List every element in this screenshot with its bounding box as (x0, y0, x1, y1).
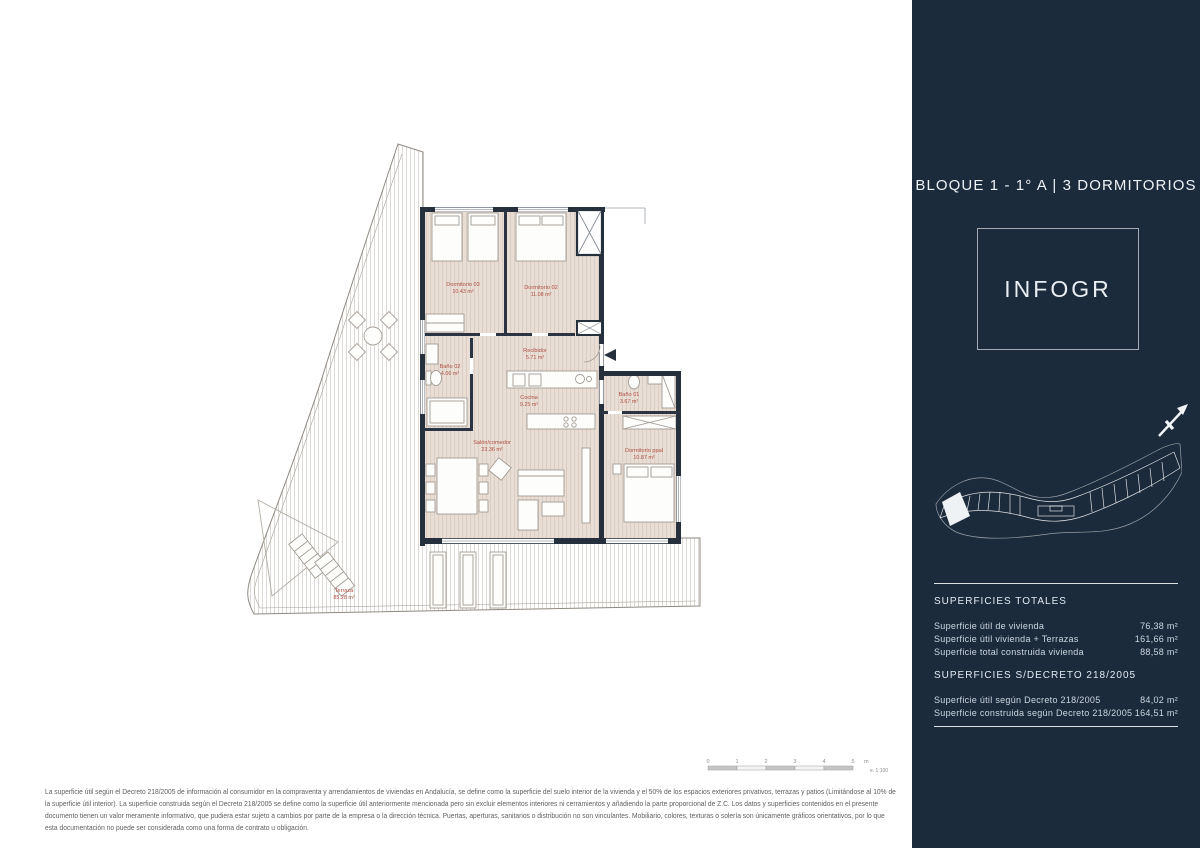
disclaimer-line: documento tienen un valor meramente info… (45, 810, 845, 822)
site-plan (930, 440, 1182, 552)
scale-note: e. 1:100 (870, 768, 888, 774)
surface-row: Superficie útil de vivienda 76,38 m² (934, 621, 1178, 631)
floor-plan: Dormitorio 03 10.43 m² Dormitorio 02 11.… (230, 128, 710, 662)
surface-row: Superficie construida según Decreto 218/… (934, 708, 1178, 718)
scale-tick: 2 (764, 759, 767, 765)
scale-tick: 3 (793, 759, 796, 765)
logo-text: INFOGR (1004, 276, 1111, 303)
divider (934, 726, 1178, 727)
room-label-dormitorio-03: Dormitorio 03 (446, 282, 480, 288)
surface-row: Superficie total construida vivienda 88,… (934, 647, 1178, 657)
surface-row: Superficie útil vivienda + Terrazas 161,… (934, 634, 1178, 644)
highlighted-unit (942, 492, 970, 526)
svg-text:4.06 m²: 4.06 m² (441, 371, 459, 377)
disclaimer-line: La superficie útil según el Decreto 218/… (45, 786, 845, 798)
context-lines (604, 208, 645, 361)
svg-text:23.36 m²: 23.36 m² (481, 447, 502, 453)
logo-box: INFOGR (977, 228, 1139, 350)
brochure-page: Dormitorio 03 10.43 m² Dormitorio 02 11.… (0, 0, 1200, 848)
room-label-dormitorio-02: Dormitorio 02 (524, 285, 558, 291)
room-label-bano-02: Baño 02 (440, 364, 461, 370)
room-label-recibidor: Recibidor (523, 348, 547, 354)
sidebar: BLOQUE 1 - 1° A | 3 DORMITORIOS INFOGR (912, 0, 1200, 848)
north-arrow-icon (1152, 398, 1192, 442)
scale-tick: 4 (822, 759, 825, 765)
surface-row: Superficie útil según Decreto 218/2005 8… (934, 695, 1178, 705)
disclaimer-line: la superficie útil interior). La superfi… (45, 798, 845, 810)
section-heading-totales: SUPERFICIES TOTALES (934, 596, 1067, 607)
floor-plan-drawing: Dormitorio 03 10.43 m² Dormitorio 02 11.… (230, 128, 710, 662)
terrace-table (364, 327, 382, 345)
svg-text:3.67 m²: 3.67 m² (620, 399, 638, 405)
scale-tick: 1 (735, 759, 738, 765)
entry-arrow-icon (604, 349, 616, 361)
unit-title: BLOQUE 1 - 1° A | 3 DORMITORIOS (912, 177, 1200, 194)
scale-tick: 5 (851, 759, 854, 765)
divider (934, 583, 1178, 584)
legal-disclaimer: La superficie útil según el Decreto 218/… (45, 786, 905, 834)
svg-text:5.71 m²: 5.71 m² (526, 355, 544, 361)
room-label-salon-comedor: Salón/comedor (473, 440, 511, 446)
section-heading-decreto: SUPERFICIES S/DECRETO 218/2005 (934, 670, 1136, 681)
svg-text:10.87 m²: 10.87 m² (633, 455, 654, 461)
room-label-bano-01: Baño 01 (619, 392, 640, 398)
scale-tick: 0 (706, 759, 709, 765)
svg-text:10.43 m²: 10.43 m² (452, 289, 473, 295)
room-label-terraza: Terraza (335, 588, 355, 594)
disclaimer-line: esta documentación no puede ser consider… (45, 822, 845, 834)
room-label-dormitorio-ppal: Dormitorio ppal (625, 448, 663, 454)
room-label-cocina: Cocina (520, 395, 538, 401)
svg-text:11.08 m²: 11.08 m² (531, 292, 552, 298)
scale-bar: 0 1 2 3 4 5 m e. 1:100 (705, 755, 915, 779)
svg-text:9.25 m²: 9.25 m² (520, 402, 538, 408)
svg-text:85.28 m²: 85.28 m² (333, 595, 354, 601)
scale-unit: m (864, 759, 869, 765)
